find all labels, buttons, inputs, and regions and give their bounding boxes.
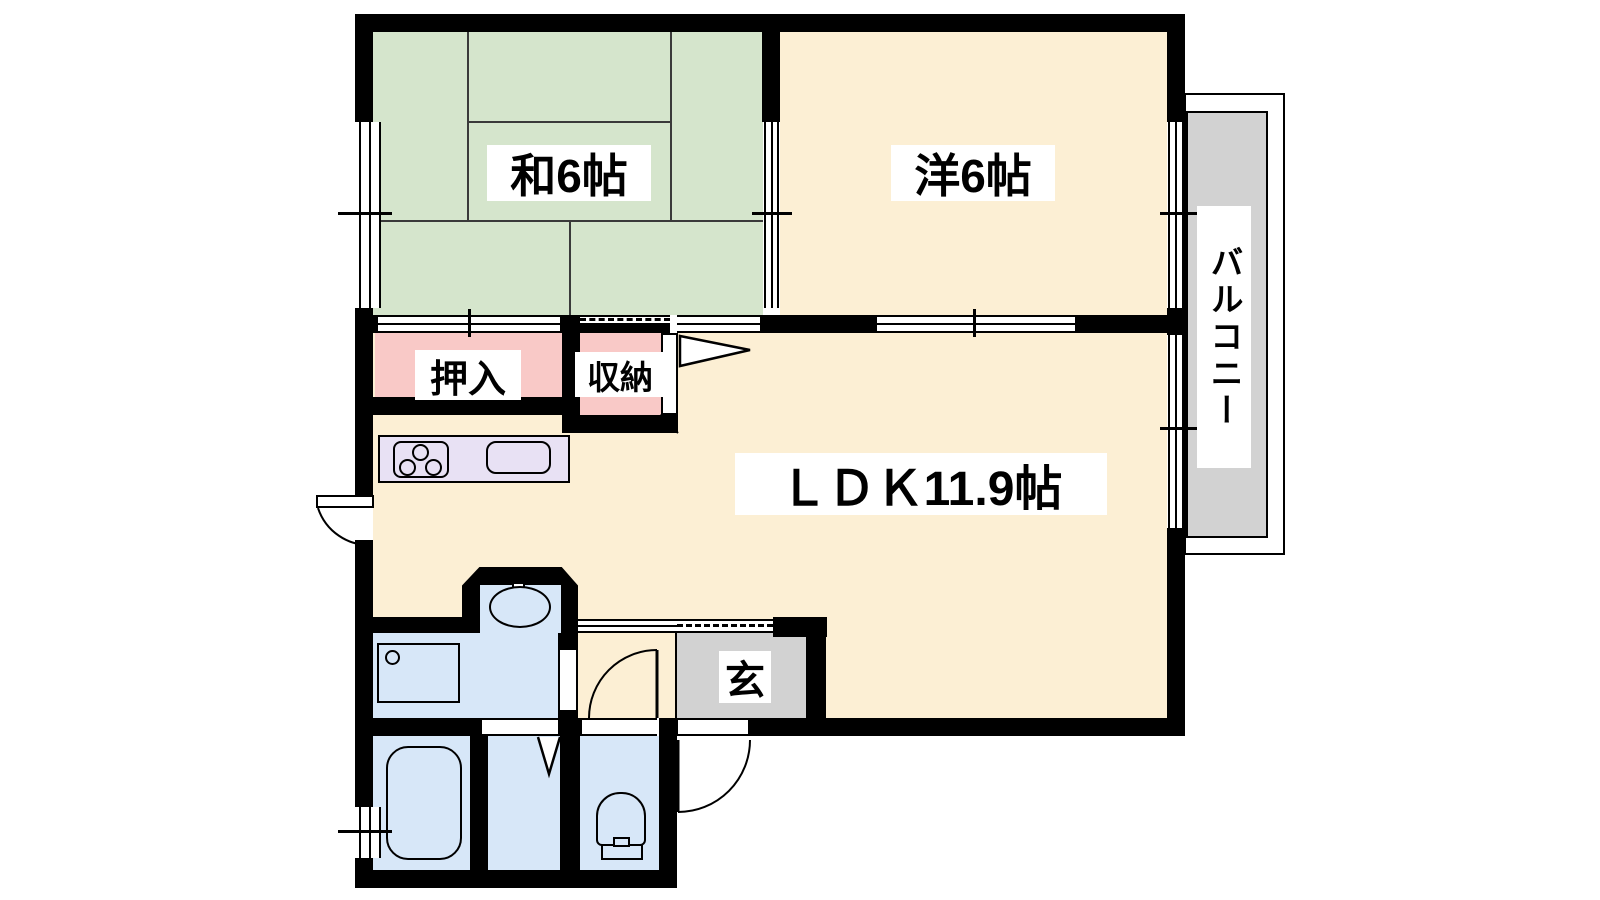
japanese-room-label: 和6帖: [487, 145, 651, 201]
wall-corner-diagonal: [660, 415, 678, 433]
ldk-label: ＬＤＫ11.9帖: [735, 453, 1107, 515]
wall-corner-diagonal: [806, 618, 826, 636]
shuno-storage-label: 収納: [575, 352, 665, 397]
bath-door-mark: [538, 737, 560, 774]
toilet-door-swing-arc: [589, 650, 657, 718]
entrance-door-swing-arc: [678, 740, 750, 812]
oshiire-closet-label: 押入: [415, 350, 521, 400]
genkan-label: 玄: [719, 651, 771, 703]
western-room-label: 洋6帖: [891, 145, 1055, 201]
backdoor-swing-arc: [318, 508, 372, 545]
floor-plan: 和6帖 洋6帖 ＬＤＫ11.9帖 押入 収納 玄 バルコニー: [0, 0, 1600, 900]
shuno-door-flag: [680, 336, 750, 366]
balcony-label: バルコニー: [1197, 206, 1251, 468]
